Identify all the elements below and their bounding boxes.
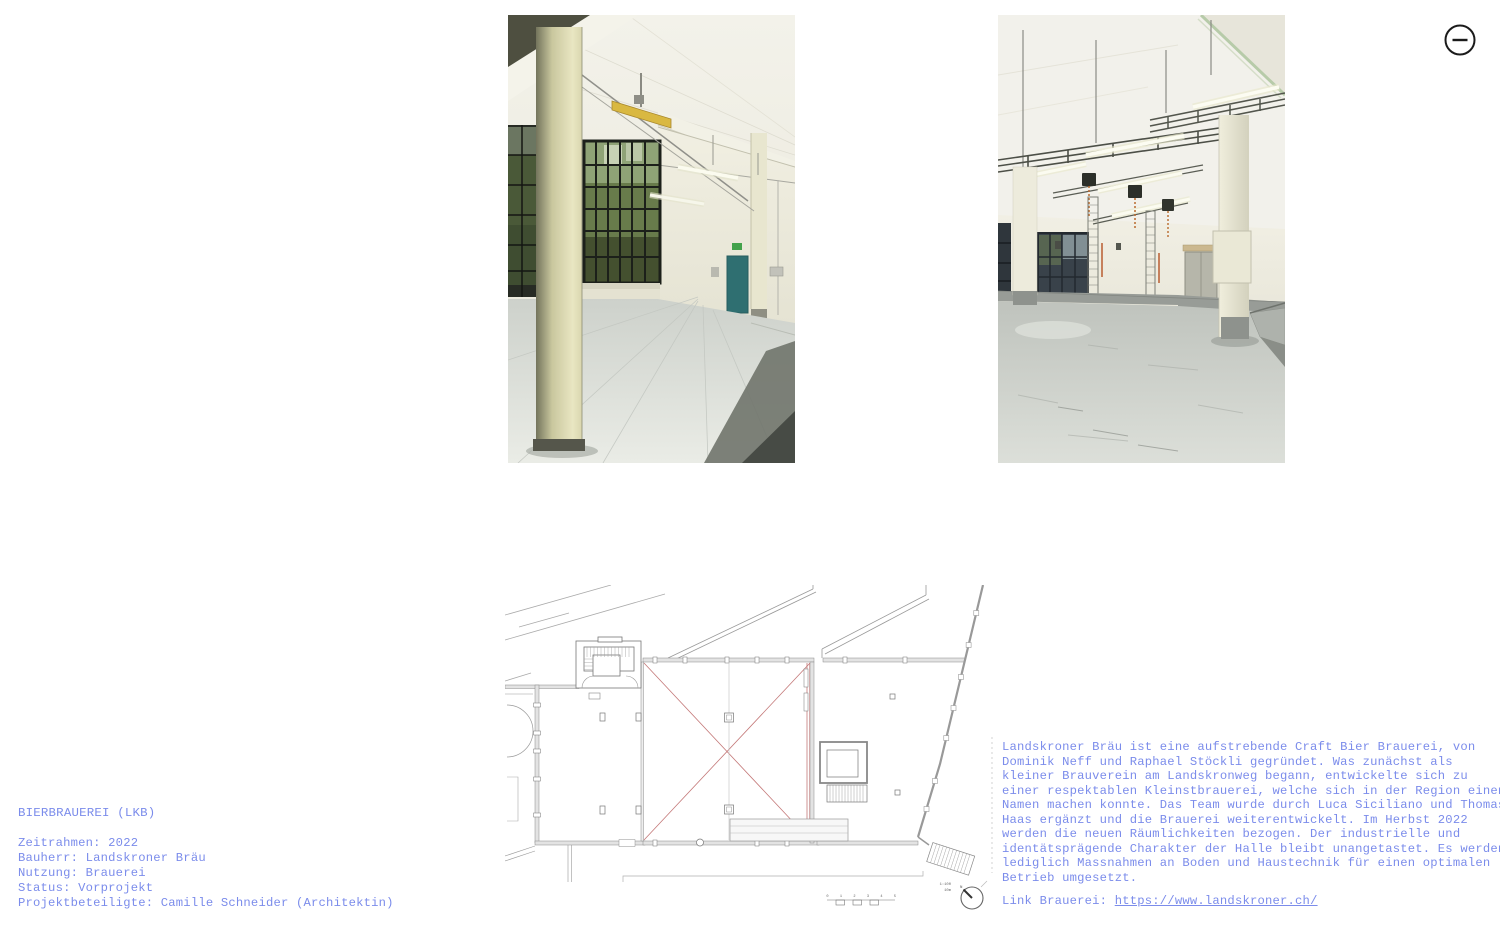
project-detail-line: Bauherr: Landskroner Bräu — [18, 851, 394, 866]
link-line: Link Brauerei: https://www.landskroner.c… — [1002, 894, 1500, 908]
svg-text:2: 2 — [853, 895, 855, 899]
description-line: Landskroner Bräu ist eine aufstrebende C… — [1002, 740, 1500, 755]
project-title: BIERBRAUEREI (LKB) — [18, 806, 394, 820]
description-line: Betrieb umgesetzt. — [1002, 871, 1500, 886]
photo-hall-columns[interactable] — [508, 15, 795, 463]
project-detail-line: Status: Vorprojekt — [18, 881, 394, 896]
plan-scale-length: 10m — [944, 889, 952, 893]
photo-hall-columns-art — [508, 15, 795, 463]
description-line: werden die neuen Räumlichkeiten bezogen.… — [1002, 827, 1500, 842]
description-paragraph: Landskroner Bräu ist eine aufstrebende C… — [1002, 740, 1500, 885]
project-detail-line: Nutzung: Brauerei — [18, 866, 394, 881]
floor-plan-art: 0 1 2 3 4 5 1:100 10m N — [505, 585, 995, 935]
collapse-button[interactable] — [1443, 23, 1477, 57]
svg-text:1: 1 — [840, 895, 842, 899]
project-detail-line: Projektbeteiligte: Camille Schneider (Ar… — [18, 896, 394, 911]
plan-scale-label: 1:100 — [940, 883, 952, 887]
project-description: Landskroner Bräu ist eine aufstrebende C… — [1002, 740, 1500, 908]
description-line: identätsprägende Charakter der Halle ble… — [1002, 842, 1500, 857]
link-label: Link Brauerei: — [1002, 894, 1115, 908]
description-line: einer respektablen Kleinstbrauerei, welc… — [1002, 784, 1500, 799]
plan-elevator — [820, 742, 867, 802]
svg-text:0: 0 — [826, 895, 828, 899]
description-line: Haas ergänzt und die Brauerei weiterentw… — [1002, 813, 1500, 828]
floor-plan-drawing[interactable]: 0 1 2 3 4 5 1:100 10m N — [505, 585, 995, 935]
description-line: kleiner Brauverein am Landskronweg began… — [1002, 769, 1500, 784]
description-line: lediglich Massnahmen an Boden und Hauste… — [1002, 856, 1500, 871]
description-line: Namen machen konnte. Das Team wurde durc… — [1002, 798, 1500, 813]
photo-hall-technic[interactable] — [998, 15, 1285, 463]
svg-text:5: 5 — [894, 895, 896, 899]
photo-hall-technic-art — [998, 15, 1285, 463]
brewery-link[interactable]: https://www.landskroner.ch/ — [1115, 894, 1318, 908]
description-line: Dominik Neff und Raphael Stöckli gegründ… — [1002, 755, 1500, 770]
project-details: Zeitrahmen: 2022Bauherr: Landskroner Brä… — [18, 836, 394, 911]
minus-circle-icon — [1443, 23, 1477, 57]
project-info: BIERBRAUEREI (LKB) Zeitrahmen: 2022Bauhe… — [18, 806, 394, 911]
project-detail-line: Zeitrahmen: 2022 — [18, 836, 394, 851]
svg-text:3: 3 — [867, 895, 869, 899]
svg-text:4: 4 — [880, 895, 882, 899]
page-root: 0 1 2 3 4 5 1:100 10m N BIERBRAUEREI (LK… — [0, 0, 1500, 937]
